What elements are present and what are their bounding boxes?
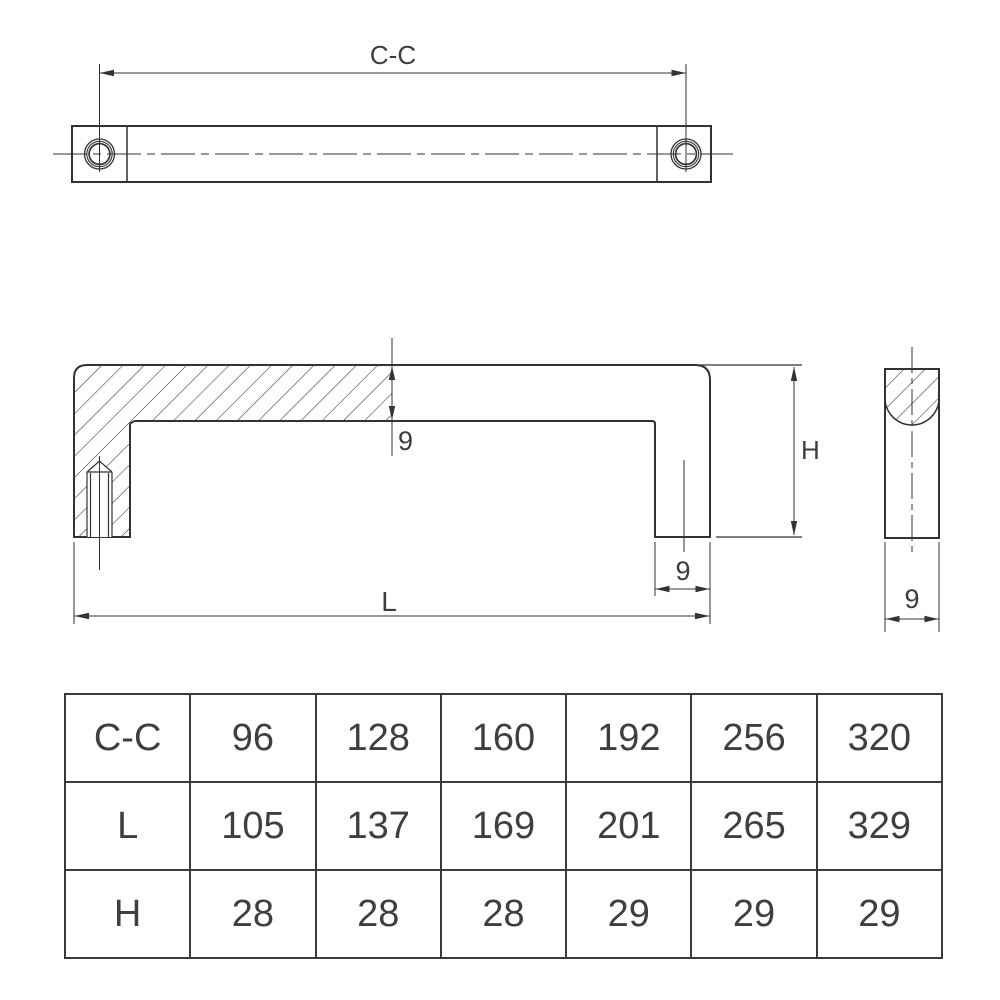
height-dimension — [697, 365, 802, 537]
table-row-cc: C-C 96 128 160 192 256 320 — [65, 694, 942, 782]
arrow-right-icon — [695, 613, 710, 619]
table-cell: 169 — [441, 782, 566, 870]
size-table: C-C 96 128 160 192 256 320 L 105 137 169… — [64, 693, 943, 959]
table-cell: 28 — [441, 870, 566, 958]
arrow-left-icon — [656, 586, 670, 592]
table-cell: 137 — [316, 782, 441, 870]
table-cell: 329 — [817, 782, 942, 870]
arrow-left-icon — [100, 70, 115, 76]
row-label: H — [65, 870, 190, 958]
table-cell: 320 — [817, 694, 942, 782]
arrow-down-icon — [791, 521, 797, 536]
table-cell: 29 — [566, 870, 691, 958]
table-cell: 96 — [190, 694, 315, 782]
cc-dimension-label: C-C — [370, 40, 416, 70]
table-cell: 192 — [566, 694, 691, 782]
table-cell: 29 — [817, 870, 942, 958]
table-row-h: H 28 28 28 29 29 29 — [65, 870, 942, 958]
height-label: H — [801, 435, 820, 465]
arrow-right-icon — [696, 586, 710, 592]
table-cell: 265 — [691, 782, 816, 870]
side-width-label: 9 — [904, 584, 919, 614]
bar-thickness-label: 9 — [398, 426, 413, 456]
row-label: L — [65, 782, 190, 870]
section-hatch-area — [74, 365, 392, 537]
length-label: L — [381, 586, 397, 617]
arrow-left-icon — [886, 616, 900, 622]
cc-dimension — [100, 64, 687, 172]
table-cell: 160 — [441, 694, 566, 782]
handle-dimension-drawing: C-C — [0, 0, 1000, 1000]
arrow-right-icon — [672, 70, 687, 76]
table-cell: 28 — [190, 870, 315, 958]
arrow-up-icon — [791, 367, 797, 382]
table-row-l: L 105 137 169 201 265 329 — [65, 782, 942, 870]
table-cell: 29 — [691, 870, 816, 958]
table-cell: 105 — [190, 782, 315, 870]
leg-width-label: 9 — [675, 556, 690, 586]
arrow-left-icon — [75, 613, 90, 619]
left-leg-screw-hole — [87, 456, 112, 570]
front-view — [74, 338, 802, 624]
table-cell: 256 — [691, 694, 816, 782]
table-cell: 201 — [566, 782, 691, 870]
row-label: C-C — [65, 694, 190, 782]
arrow-right-icon — [925, 616, 939, 622]
table-cell: 28 — [316, 870, 441, 958]
top-view — [53, 64, 733, 182]
table-cell: 128 — [316, 694, 441, 782]
